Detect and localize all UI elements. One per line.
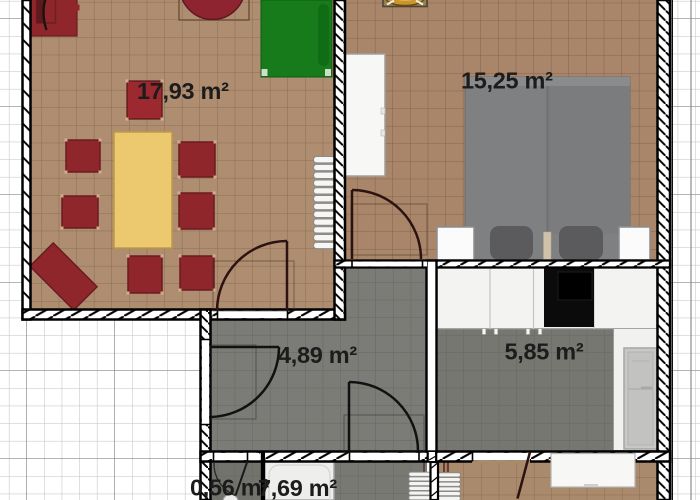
svg-text:7,69 m²: 7,69 m² [258, 475, 337, 500]
svg-text:15,25 m²: 15,25 m² [461, 68, 553, 94]
svg-text:5,85 m²: 5,85 m² [505, 339, 584, 365]
svg-text:4,89 m²: 4,89 m² [278, 342, 357, 368]
svg-text:17,93 m²: 17,93 m² [137, 78, 229, 104]
